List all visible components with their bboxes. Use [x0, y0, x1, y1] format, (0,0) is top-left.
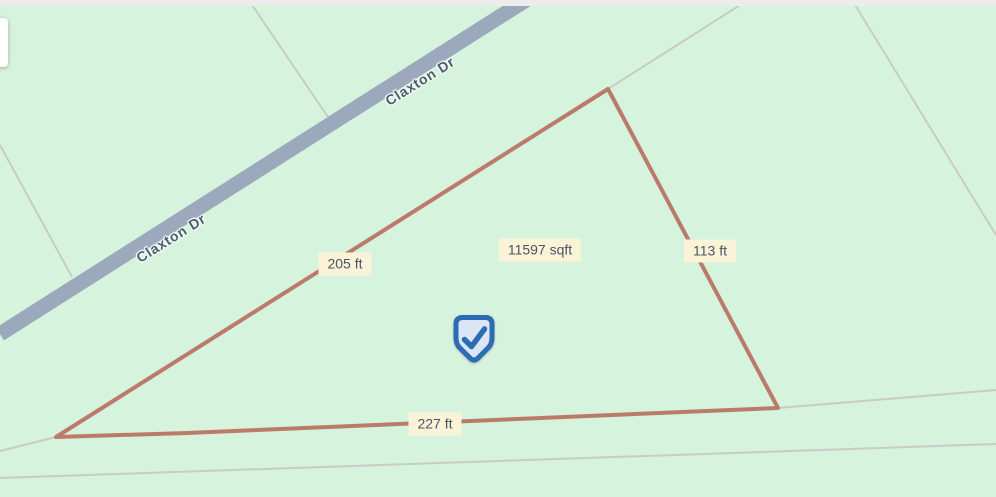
road-claxton-dr [0, 0, 526, 334]
measurement-label-right-edge: 113 ft [684, 240, 736, 263]
top-bar [0, 0, 996, 6]
map-view[interactable]: Claxton Dr Claxton Dr 205 ft 11597 sqft … [0, 0, 996, 497]
parcel-line-6 [0, 437, 56, 451]
parcel-line-0 [252, 5, 328, 117]
measurement-label-left-edge: 205 ft [318, 253, 371, 276]
parcel-line-3 [852, 0, 996, 235]
parcel-line-1 [0, 145, 72, 277]
shield-check-icon [451, 313, 497, 367]
verified-lot-marker[interactable] [451, 313, 497, 367]
measurement-label-lot-area: 11597 sqft [499, 239, 581, 262]
lot-boundary-polygon [56, 89, 778, 437]
parcel-line-5 [0, 444, 996, 478]
map-control-partial[interactable] [0, 18, 8, 67]
measurement-label-bottom-edge: 227 ft [408, 413, 461, 436]
parcel-line-4 [778, 390, 996, 408]
parcel-line-2 [608, 0, 748, 89]
